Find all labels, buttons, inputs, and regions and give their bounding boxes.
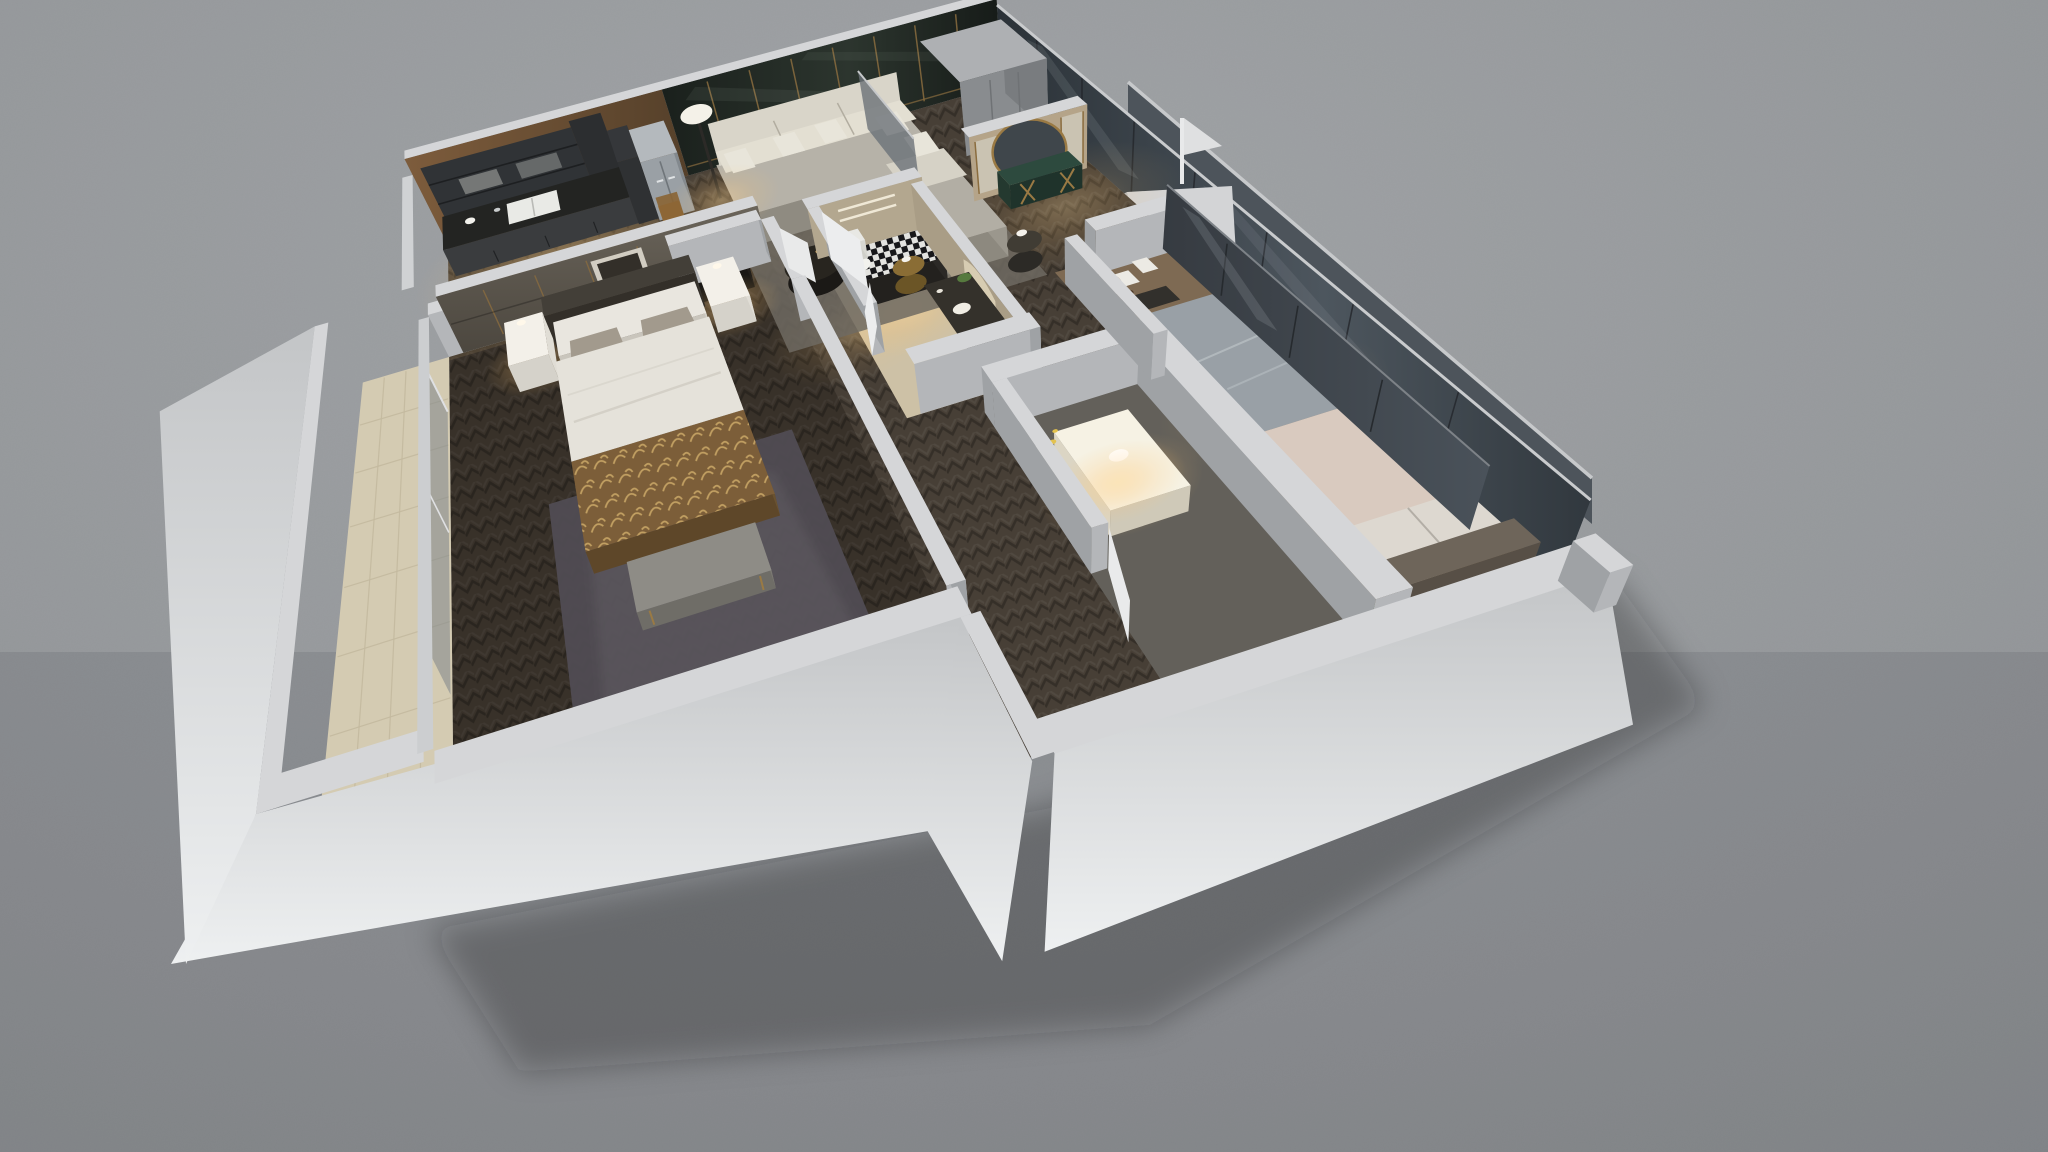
apartment-render-canvas: KitchenLiving / DiningEntry HallBathroom… [0,0,2048,1152]
floorplan-3d-render: KitchenLiving / DiningEntry HallBathroom… [0,0,2048,1152]
west-wall-kitchen [402,175,414,290]
